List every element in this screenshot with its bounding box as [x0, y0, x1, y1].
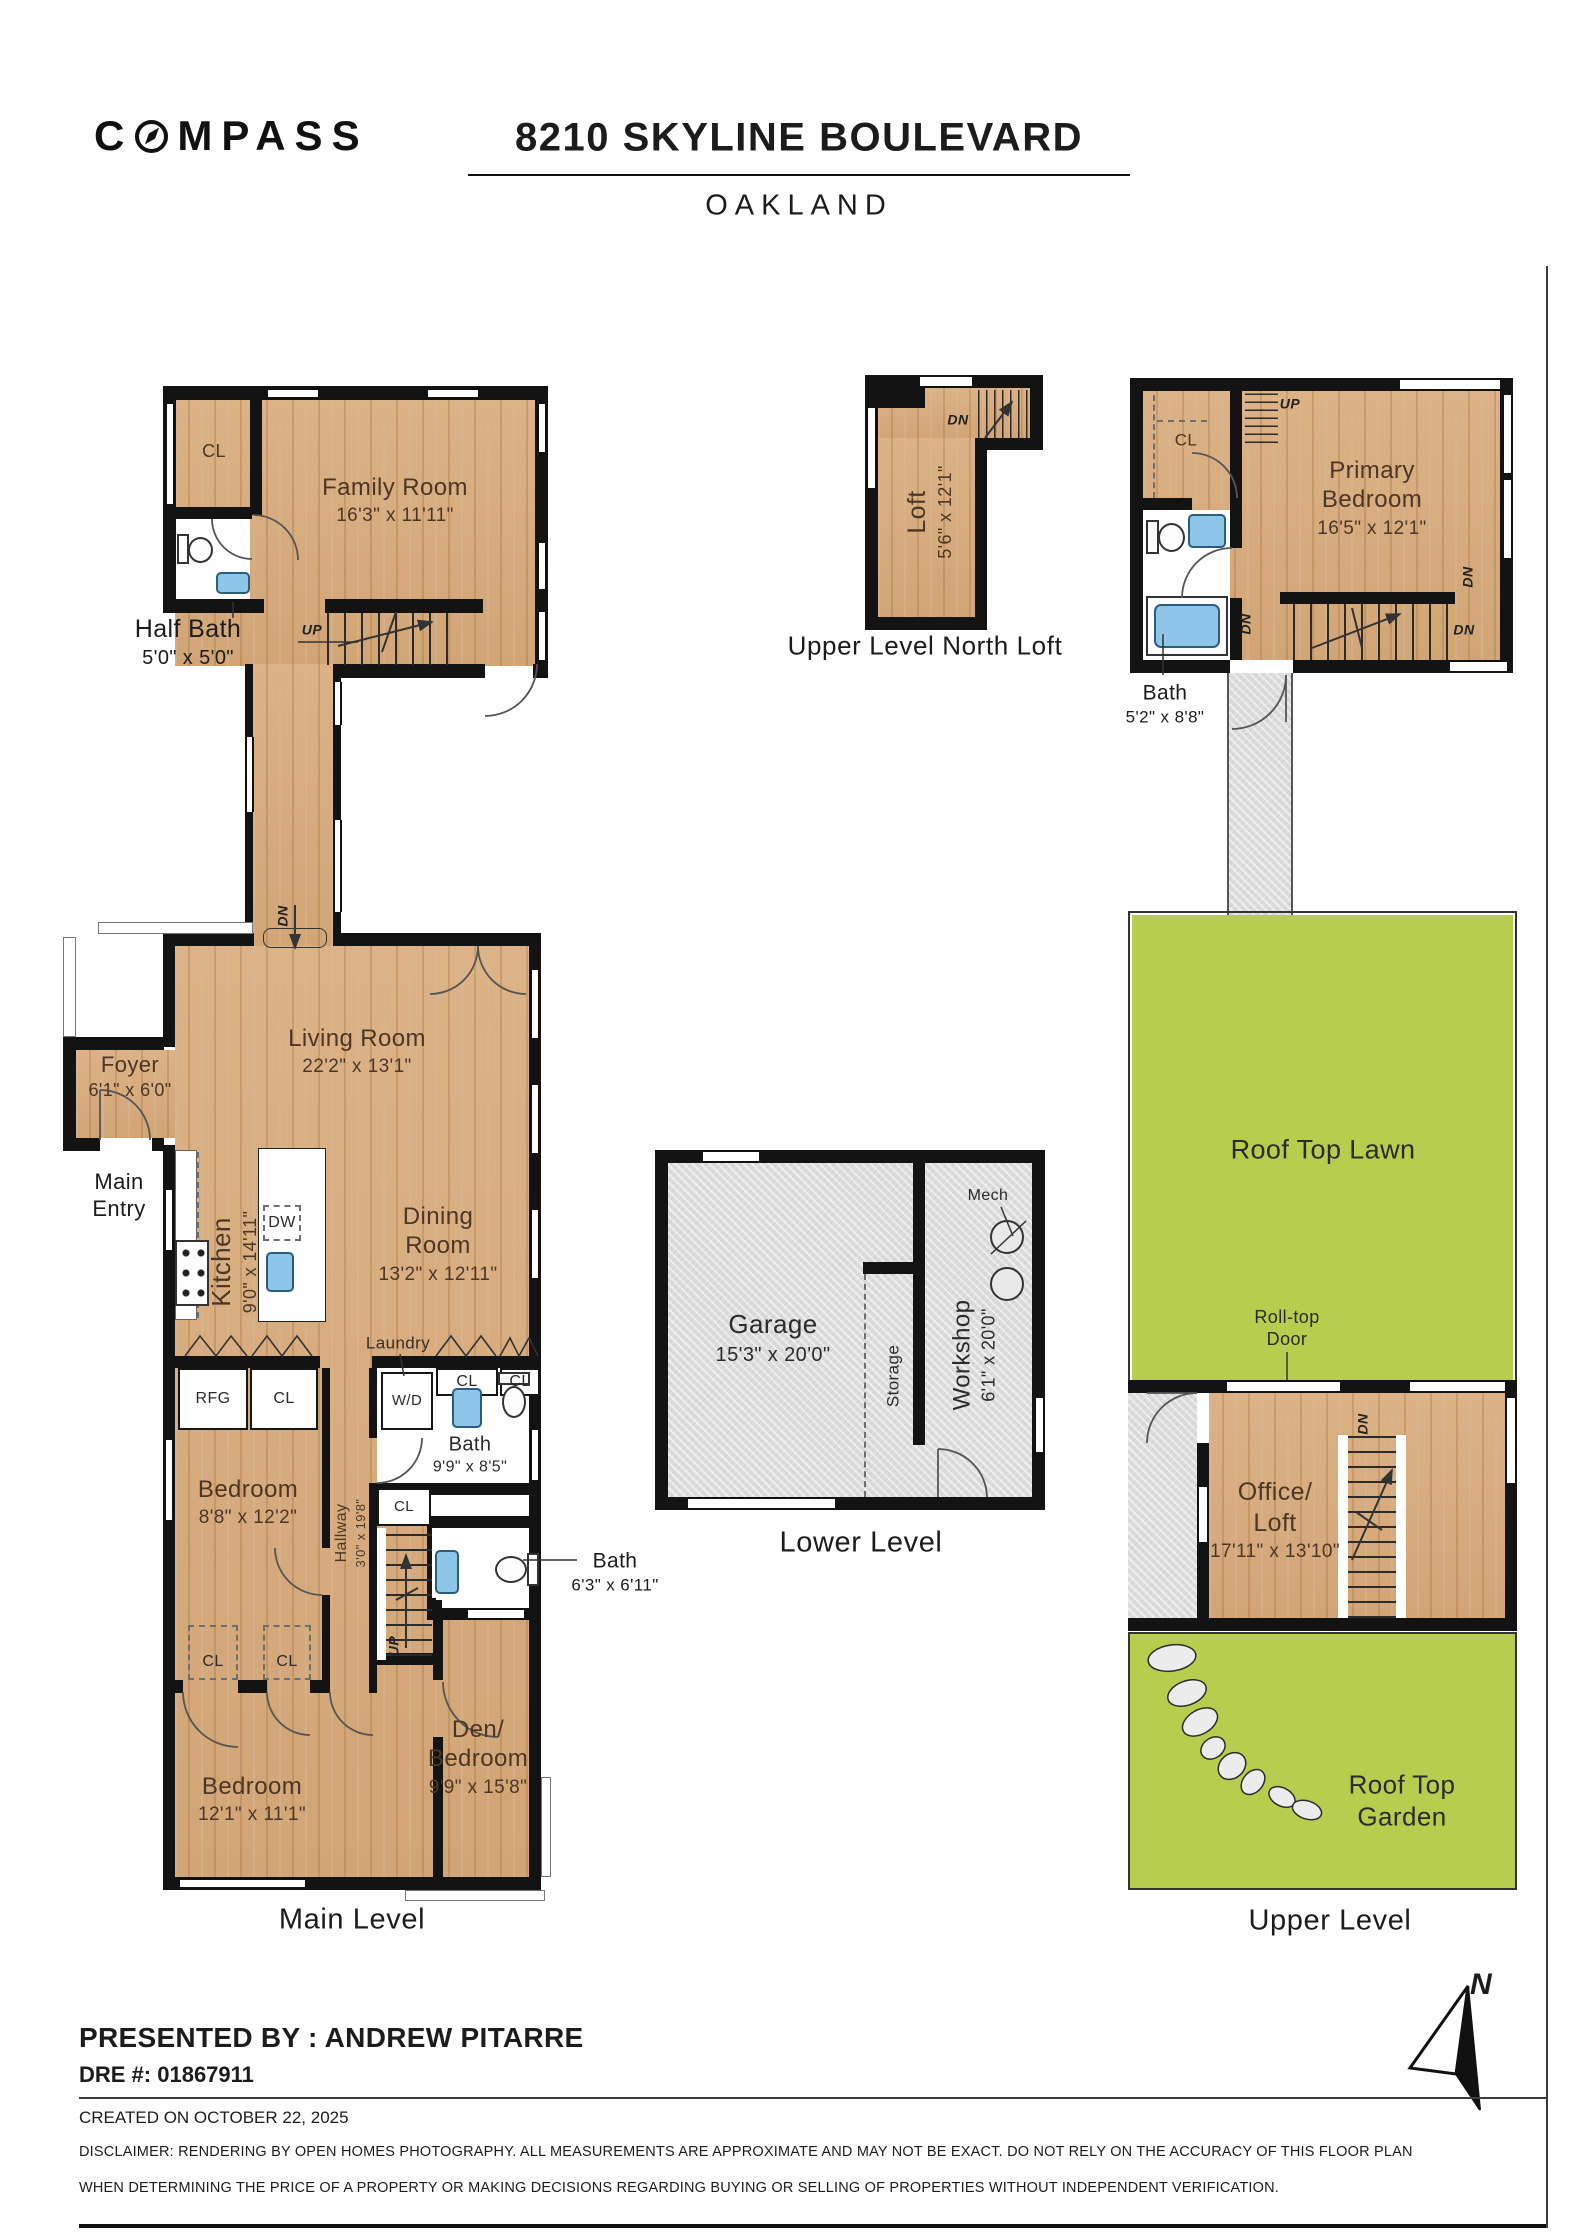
closet-dashed-line: [1157, 420, 1207, 422]
caption-main-level: Main Level: [279, 1904, 425, 1937]
den-bedroom-label: Den/Bedroom9'9" x 15'8": [428, 1715, 528, 1799]
wall: [1340, 1380, 1410, 1393]
window: [1450, 660, 1507, 673]
footer-bottom-border: [79, 2224, 1546, 2228]
closet-dashed-line: [1153, 395, 1155, 498]
caption-upper-level: Upper Level: [1249, 1905, 1412, 1938]
closet-label: CL: [394, 1498, 414, 1516]
stove-icon: [175, 1240, 209, 1306]
sink-icon: [452, 1388, 482, 1428]
family-room-label: Family Room16'3" x 11'11": [322, 473, 468, 527]
window: [268, 388, 318, 399]
stairs-loft-dn: [978, 390, 1030, 438]
window: [530, 1210, 540, 1278]
page-title: 8210 SKYLINE BOULEVARD: [515, 116, 1083, 161]
dn-label: DN: [1459, 566, 1476, 587]
toilet-icon: [495, 1556, 527, 1583]
disclaimer-line2: WHEN DETERMINING THE PRICE OF A PROPERTY…: [79, 2180, 1279, 2196]
window: [1400, 378, 1500, 391]
wall: [1230, 390, 1242, 510]
dre-number: DRE #: 01867911: [79, 2062, 254, 2088]
office-walkway: [1128, 1393, 1197, 1618]
window: [530, 1085, 540, 1153]
window: [537, 404, 547, 452]
wall: [427, 1516, 541, 1528]
sink-icon: [216, 572, 250, 594]
wall: [163, 1356, 320, 1368]
roll-top-door-label: Roll-topDoor: [1254, 1307, 1319, 1351]
wall: [63, 1037, 76, 1151]
wall: [1030, 375, 1043, 450]
hallway-label: Hallway3'0" x 19'8": [332, 1499, 368, 1568]
washer-dryer-label: W/D: [392, 1392, 422, 1410]
wall: [1128, 1380, 1227, 1393]
closet-label: CL: [202, 441, 226, 463]
wall: [163, 933, 254, 946]
roof-top-garden: [1130, 1634, 1515, 1888]
wall: [1032, 1150, 1045, 1510]
closet-label: CL: [1175, 431, 1198, 452]
walkway: [1227, 673, 1293, 917]
garage-door: [688, 1497, 835, 1510]
wall: [1130, 660, 1230, 673]
laundry-label: Laundry: [366, 1334, 430, 1355]
window: [920, 375, 972, 388]
sink-icon: [435, 1550, 459, 1594]
wall: [322, 1368, 330, 1548]
roof-top-lawn-label: Roof Top Lawn: [1231, 1134, 1416, 1167]
wall: [163, 599, 264, 613]
compass-o-icon: [135, 120, 168, 153]
bathtub-basin: [1154, 604, 1220, 648]
wall: [333, 933, 541, 946]
workshop-label: Workshop6'1" x 20'0": [947, 1300, 1000, 1411]
wall: [163, 386, 548, 400]
roof-top-garden-label: Roof TopGarden: [1349, 1769, 1456, 1832]
bath-main-label: Bath9'9" x 8'5": [433, 1433, 507, 1478]
wall: [533, 664, 548, 678]
bathtub-icon: [1146, 596, 1228, 656]
wall: [333, 664, 485, 678]
mech-label: Mech: [968, 1186, 1009, 1206]
loft-label: Loft5'6" x 12'1": [902, 465, 956, 559]
bath-hall-label: Bath6'3" x 6'11": [571, 1548, 658, 1595]
toilet-icon: [1158, 523, 1185, 552]
window: [180, 1878, 305, 1889]
wall: [369, 1483, 377, 1693]
window: [333, 682, 342, 725]
foyer-label: Foyer6'1" x 6'0": [88, 1052, 171, 1102]
caption-lower-level: Lower Level: [780, 1527, 943, 1560]
fridge-label: RFG: [196, 1389, 231, 1409]
dn-label: DN: [274, 905, 291, 926]
railing: [98, 922, 253, 934]
wall: [372, 1356, 541, 1368]
window: [1502, 395, 1513, 473]
window: [537, 543, 547, 589]
window: [537, 612, 547, 660]
dishwasher-label: DW: [268, 1213, 295, 1233]
window: [866, 408, 877, 488]
window: [165, 404, 175, 504]
disclaimer-line1: DISCLAIMER: RENDERING BY OPEN HOMES PHOT…: [79, 2144, 1413, 2160]
window: [164, 1190, 174, 1250]
dining-room-label: DiningRoom13'2" x 12'11": [379, 1202, 498, 1286]
wall: [1130, 378, 1143, 673]
stairs-office-dn: [1348, 1435, 1396, 1618]
railing: [63, 937, 76, 1037]
wall: [163, 1680, 183, 1693]
stairs-primary-dn: [1293, 604, 1450, 660]
railing: [405, 1890, 545, 1901]
compass-logo: CMPASS: [94, 112, 369, 160]
wall: [1128, 1618, 1517, 1631]
toilet-icon: [188, 537, 213, 563]
storage-dashed-divider: [864, 1274, 866, 1497]
bedroom-a-label: Bedroom8'8" x 12'2": [198, 1475, 298, 1529]
window: [333, 820, 342, 912]
window: [428, 388, 478, 399]
toilet-icon: [527, 1553, 539, 1586]
wall: [176, 507, 252, 519]
window: [164, 1440, 174, 1520]
mech-equipment-icon: [990, 1267, 1024, 1301]
wall: [63, 1138, 100, 1151]
stair-landing: [263, 928, 327, 948]
logo-letter-c: C: [94, 112, 133, 160]
stairs-primary-up: [1245, 393, 1278, 443]
wall: [863, 1262, 913, 1274]
wall: [63, 1037, 164, 1050]
wall: [163, 933, 175, 1047]
title-underline: [468, 174, 1130, 176]
wall: [433, 1620, 443, 1680]
main-entry-label: MainEntry: [92, 1169, 145, 1223]
window: [703, 1150, 759, 1163]
closet-label: CL: [202, 1652, 223, 1672]
half-bath-label: Half Bath5'0" x 5'0": [135, 614, 241, 670]
closet-label: CL: [273, 1389, 294, 1409]
wall: [865, 375, 925, 408]
window: [245, 737, 254, 812]
bedroom-b-label: Bedroom12'1" x 11'1": [198, 1772, 306, 1826]
logo-letters-rest: MPASS: [177, 112, 368, 160]
kitchen-label: Kitchen9'0" x 14'11": [206, 1211, 262, 1314]
corridor-floor: [253, 664, 333, 946]
storage-label: Storage: [884, 1345, 905, 1407]
closet-label: CL: [276, 1652, 297, 1672]
garage-label: Garage15'3" x 20'0": [716, 1309, 831, 1367]
railing: [541, 1777, 551, 1877]
up-label: UP: [385, 1636, 402, 1656]
wall: [250, 397, 262, 515]
dn-label: DN: [1453, 621, 1474, 638]
closet-label: CL: [456, 1372, 477, 1392]
floor-plan-sheet: CMPASS 8210 SKYLINE BOULEVARD OAKLAND: [0, 0, 1584, 2240]
window: [530, 1430, 540, 1480]
office-loft-label: Office/Loft17'11" x 13'10": [1210, 1477, 1340, 1563]
stairs-family: [327, 613, 460, 665]
wall: [975, 443, 987, 617]
primary-bedroom-label: PrimaryBedroom16'5" x 12'1": [1317, 456, 1426, 540]
up-label: UP: [1280, 395, 1300, 412]
kitchen-sink-icon: [266, 1252, 294, 1292]
dn-label: DN: [1354, 1413, 1371, 1434]
window: [530, 970, 540, 1038]
created-on: CREATED ON OCTOBER 22, 2025: [79, 2108, 349, 2128]
wall: [1280, 592, 1455, 604]
footer-divider: [79, 2097, 1546, 2099]
wall: [310, 1680, 330, 1693]
closet-label: CL: [509, 1372, 530, 1392]
window: [1502, 480, 1513, 558]
wall: [865, 617, 987, 630]
dn-label: DN: [947, 411, 968, 428]
window: [468, 1608, 524, 1620]
wall: [913, 1163, 925, 1445]
wall: [322, 1595, 330, 1685]
window: [1197, 1487, 1209, 1542]
up-label: UP: [302, 621, 322, 638]
mech-equipment-icon: [990, 1220, 1024, 1254]
bath-upper-label: Bath5'2" x 8'8": [1126, 680, 1205, 727]
north-arrow-icon: [1404, 1980, 1504, 2120]
sink-icon: [1188, 514, 1226, 548]
window: [1410, 1380, 1507, 1393]
wall: [325, 599, 483, 613]
window: [1505, 1398, 1517, 1483]
wall: [369, 1368, 377, 1438]
wall: [1142, 498, 1192, 510]
roll-top-door-opening: [1227, 1380, 1340, 1393]
wall: [529, 933, 541, 1890]
page-right-border: [1546, 266, 1548, 2228]
presented-by: PRESENTED BY : ANDREW PITARRE: [79, 2022, 583, 2054]
stair-stringer: [1396, 1435, 1406, 1618]
wall: [655, 1150, 668, 1510]
caption-north-loft: Upper Level North Loft: [788, 631, 1063, 662]
dn-label: DN: [1237, 613, 1254, 634]
living-room-label: Living Room22'2" x 13'1": [288, 1024, 426, 1078]
wall: [1230, 510, 1242, 548]
page-subtitle: OAKLAND: [705, 190, 893, 223]
wall: [238, 1680, 267, 1693]
window: [1034, 1398, 1045, 1452]
